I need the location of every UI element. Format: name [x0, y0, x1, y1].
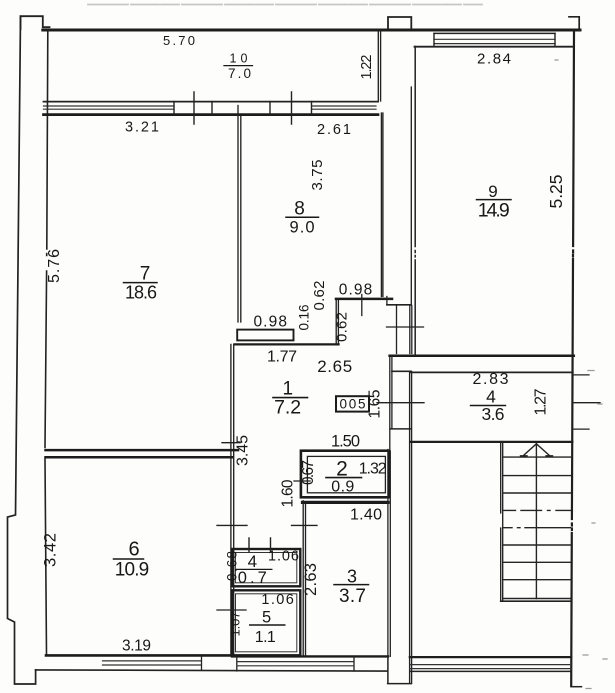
svg-text:0.62: 0.62: [334, 312, 351, 342]
svg-text:0.62: 0.62: [311, 281, 328, 311]
svg-text:10: 10: [230, 52, 248, 66]
svg-text:3.42: 3.42: [42, 533, 60, 567]
svg-text:5.70: 5.70: [163, 33, 195, 48]
svg-text:1.40: 1.40: [350, 507, 382, 524]
svg-text:2.61: 2.61: [317, 122, 351, 138]
svg-text:1.65: 1.65: [367, 390, 384, 419]
svg-text:9: 9: [488, 182, 497, 201]
svg-text:5.76: 5.76: [46, 249, 63, 283]
svg-text:1.1: 1.1: [255, 629, 276, 646]
svg-text:1.27: 1.27: [533, 388, 550, 415]
svg-text:7: 7: [140, 264, 151, 285]
svg-text:7.0: 7.0: [228, 66, 251, 81]
svg-text:5: 5: [262, 609, 271, 627]
svg-text:10.9: 10.9: [115, 560, 150, 581]
svg-text:2.65: 2.65: [317, 357, 352, 376]
svg-text:3: 3: [347, 567, 357, 587]
svg-text:1.06: 1.06: [268, 549, 299, 565]
svg-text:3.7: 3.7: [339, 586, 366, 607]
svg-text:1.06: 1.06: [261, 592, 294, 608]
svg-text:1.77: 1.77: [267, 348, 297, 365]
svg-text:7.2: 7.2: [274, 397, 301, 419]
svg-text:1.60: 1.60: [280, 479, 297, 507]
svg-text:1.07: 1.07: [228, 612, 243, 637]
svg-text:1.32: 1.32: [359, 461, 387, 478]
svg-text:1.50: 1.50: [331, 433, 360, 451]
svg-text:0.7: 0.7: [238, 569, 267, 587]
svg-text:0.98: 0.98: [339, 282, 373, 299]
svg-text:14.9: 14.9: [478, 200, 510, 222]
svg-text:0.9: 0.9: [331, 479, 354, 496]
svg-text:6: 6: [128, 539, 139, 561]
svg-text:9.0: 9.0: [290, 219, 315, 237]
svg-text:8: 8: [294, 199, 305, 220]
svg-text:005: 005: [340, 396, 366, 411]
svg-text:1.22: 1.22: [359, 55, 375, 80]
svg-text:0.98: 0.98: [253, 313, 287, 330]
svg-text:0.16: 0.16: [297, 305, 312, 331]
svg-text:5.25: 5.25: [546, 175, 566, 209]
svg-text:3.19: 3.19: [122, 638, 151, 655]
svg-text:3.75: 3.75: [309, 160, 326, 191]
svg-text:2.63: 2.63: [302, 563, 320, 596]
svg-text:2.83: 2.83: [473, 371, 509, 388]
svg-text:3.21: 3.21: [125, 120, 159, 136]
svg-text:3.6: 3.6: [482, 404, 505, 424]
svg-text:18.6: 18.6: [125, 283, 157, 303]
svg-text:2.84: 2.84: [477, 51, 511, 68]
